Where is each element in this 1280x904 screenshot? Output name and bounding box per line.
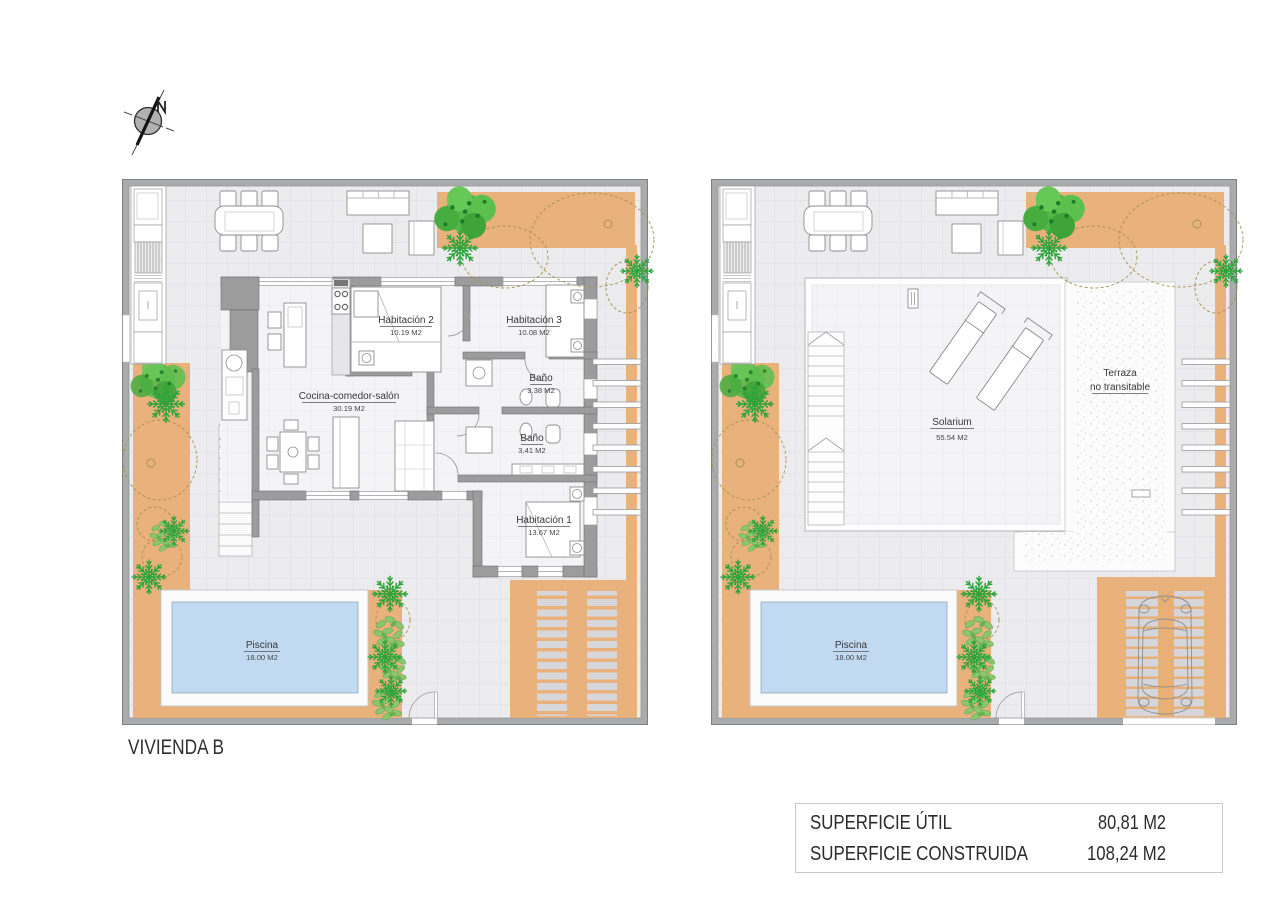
svg-text:Cocina-comedor-salón: Cocina-comedor-salón [299,391,400,402]
svg-text:30.19 M2: 30.19 M2 [333,404,365,413]
svg-text:10.19 M2: 10.19 M2 [390,328,422,337]
svg-text:Habitación 1: Habitación 1 [516,515,572,526]
svg-text:55.54 M2: 55.54 M2 [936,433,968,442]
svg-text:SUPERFICIE ÚTIL: SUPERFICIE ÚTIL [810,811,952,834]
svg-text:SUPERFICIE CONSTRUIDA: SUPERFICIE CONSTRUIDA [810,843,1029,865]
svg-text:3.41 M2: 3.41 M2 [518,446,545,455]
svg-text:80,81 M2: 80,81 M2 [1098,812,1166,834]
svg-text:Terraza: Terraza [1103,368,1137,379]
svg-text:13.67 M2: 13.67 M2 [528,528,560,537]
svg-text:3.38 M2: 3.38 M2 [527,386,554,395]
svg-text:Baño: Baño [520,433,544,444]
svg-text:Habitación 3: Habitación 3 [506,315,562,326]
svg-text:VIVIENDA B: VIVIENDA B [128,736,224,759]
svg-text:108,24 M2: 108,24 M2 [1087,843,1166,865]
svg-text:Habitación 2: Habitación 2 [378,315,434,326]
svg-text:Solarium: Solarium [932,417,971,428]
svg-text:no transitable: no transitable [1090,382,1150,393]
svg-text:Baño: Baño [529,373,553,384]
svg-text:10.08 M2: 10.08 M2 [518,328,550,337]
